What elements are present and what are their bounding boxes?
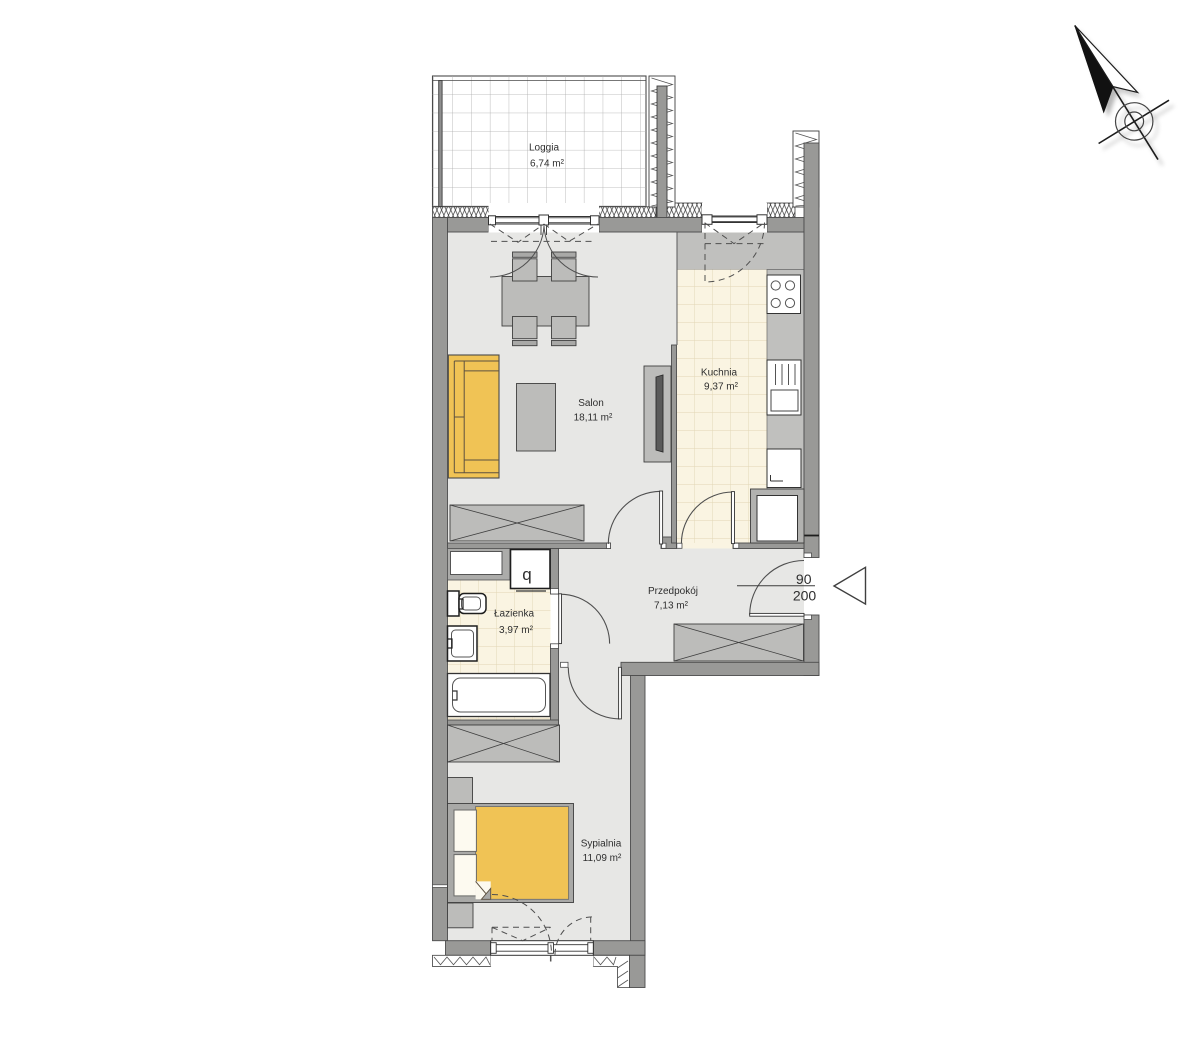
svg-text:11,09 m²: 11,09 m² bbox=[583, 853, 622, 864]
svg-text:7,13 m²: 7,13 m² bbox=[654, 601, 689, 612]
svg-text:Sypialnia: Sypialnia bbox=[581, 839, 622, 850]
svg-text:200: 200 bbox=[793, 588, 817, 604]
svg-text:Salon: Salon bbox=[578, 398, 604, 409]
svg-text:90: 90 bbox=[796, 571, 812, 587]
svg-text:Kuchnia: Kuchnia bbox=[701, 368, 738, 379]
svg-text:9,37 m²: 9,37 m² bbox=[704, 382, 739, 393]
svg-text:3,97 m²: 3,97 m² bbox=[499, 625, 534, 636]
svg-text:Loggia: Loggia bbox=[529, 143, 559, 154]
svg-text:Łazienka: Łazienka bbox=[494, 609, 534, 620]
svg-text:q: q bbox=[522, 565, 531, 584]
svg-text:18,11 m²: 18,11 m² bbox=[574, 413, 613, 424]
svg-text:6,74 m²: 6,74 m² bbox=[530, 159, 565, 170]
svg-text:Przedpokój: Przedpokój bbox=[648, 586, 698, 597]
